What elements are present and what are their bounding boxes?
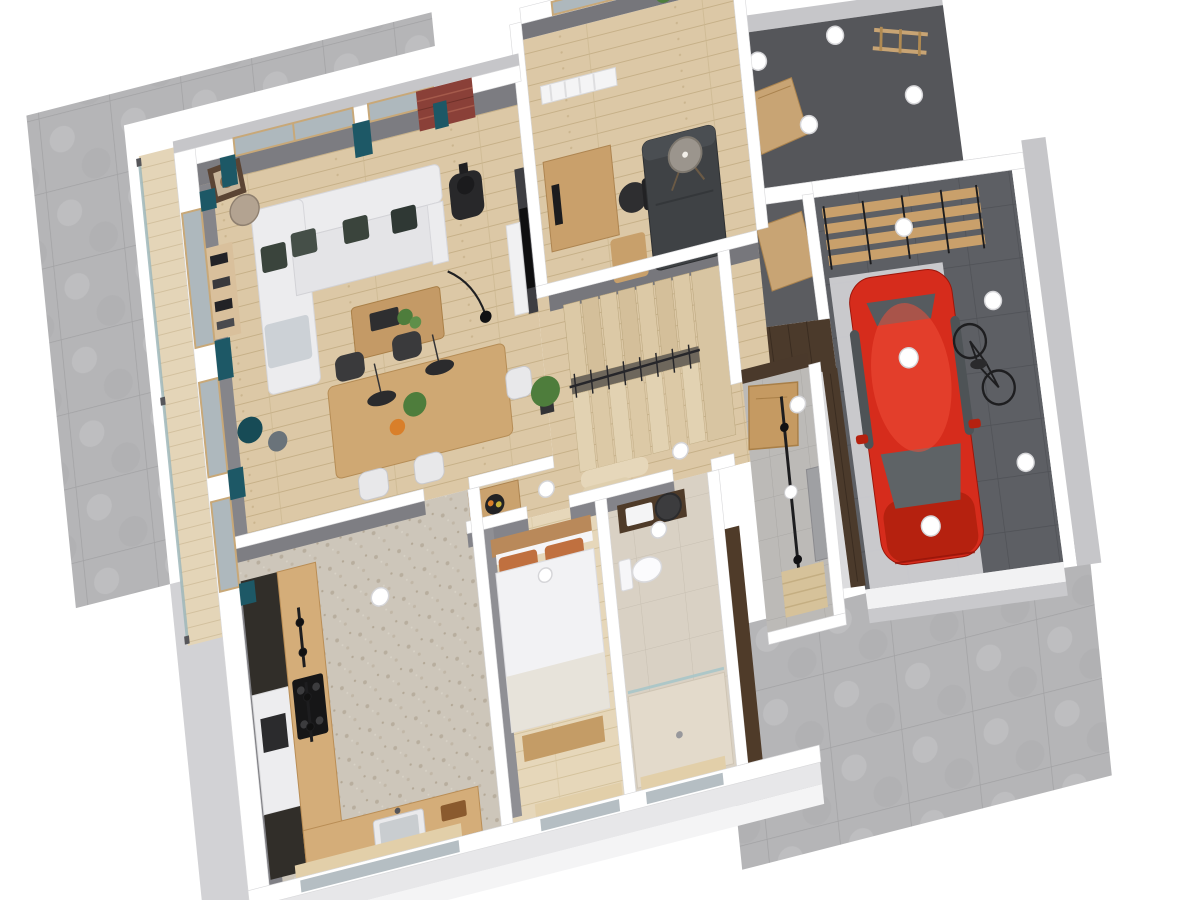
car-windshield: [881, 443, 968, 510]
main-house: [168, 0, 859, 900]
teal-curtain: [239, 580, 257, 606]
teal-curtain: [199, 188, 216, 212]
car-mirror: [855, 434, 868, 445]
railing-post: [136, 158, 142, 167]
front-door: [743, 374, 804, 457]
teal-curtain: [352, 120, 373, 158]
railing-post: [184, 635, 190, 644]
teal-curtain: [227, 467, 245, 501]
teal-curtain: [220, 154, 238, 188]
teal-curtain: [433, 100, 449, 129]
railing-post: [160, 397, 166, 406]
oven: [260, 713, 288, 753]
floor-plan-render-3d: [0, 0, 1200, 900]
car-mirror: [968, 418, 981, 429]
